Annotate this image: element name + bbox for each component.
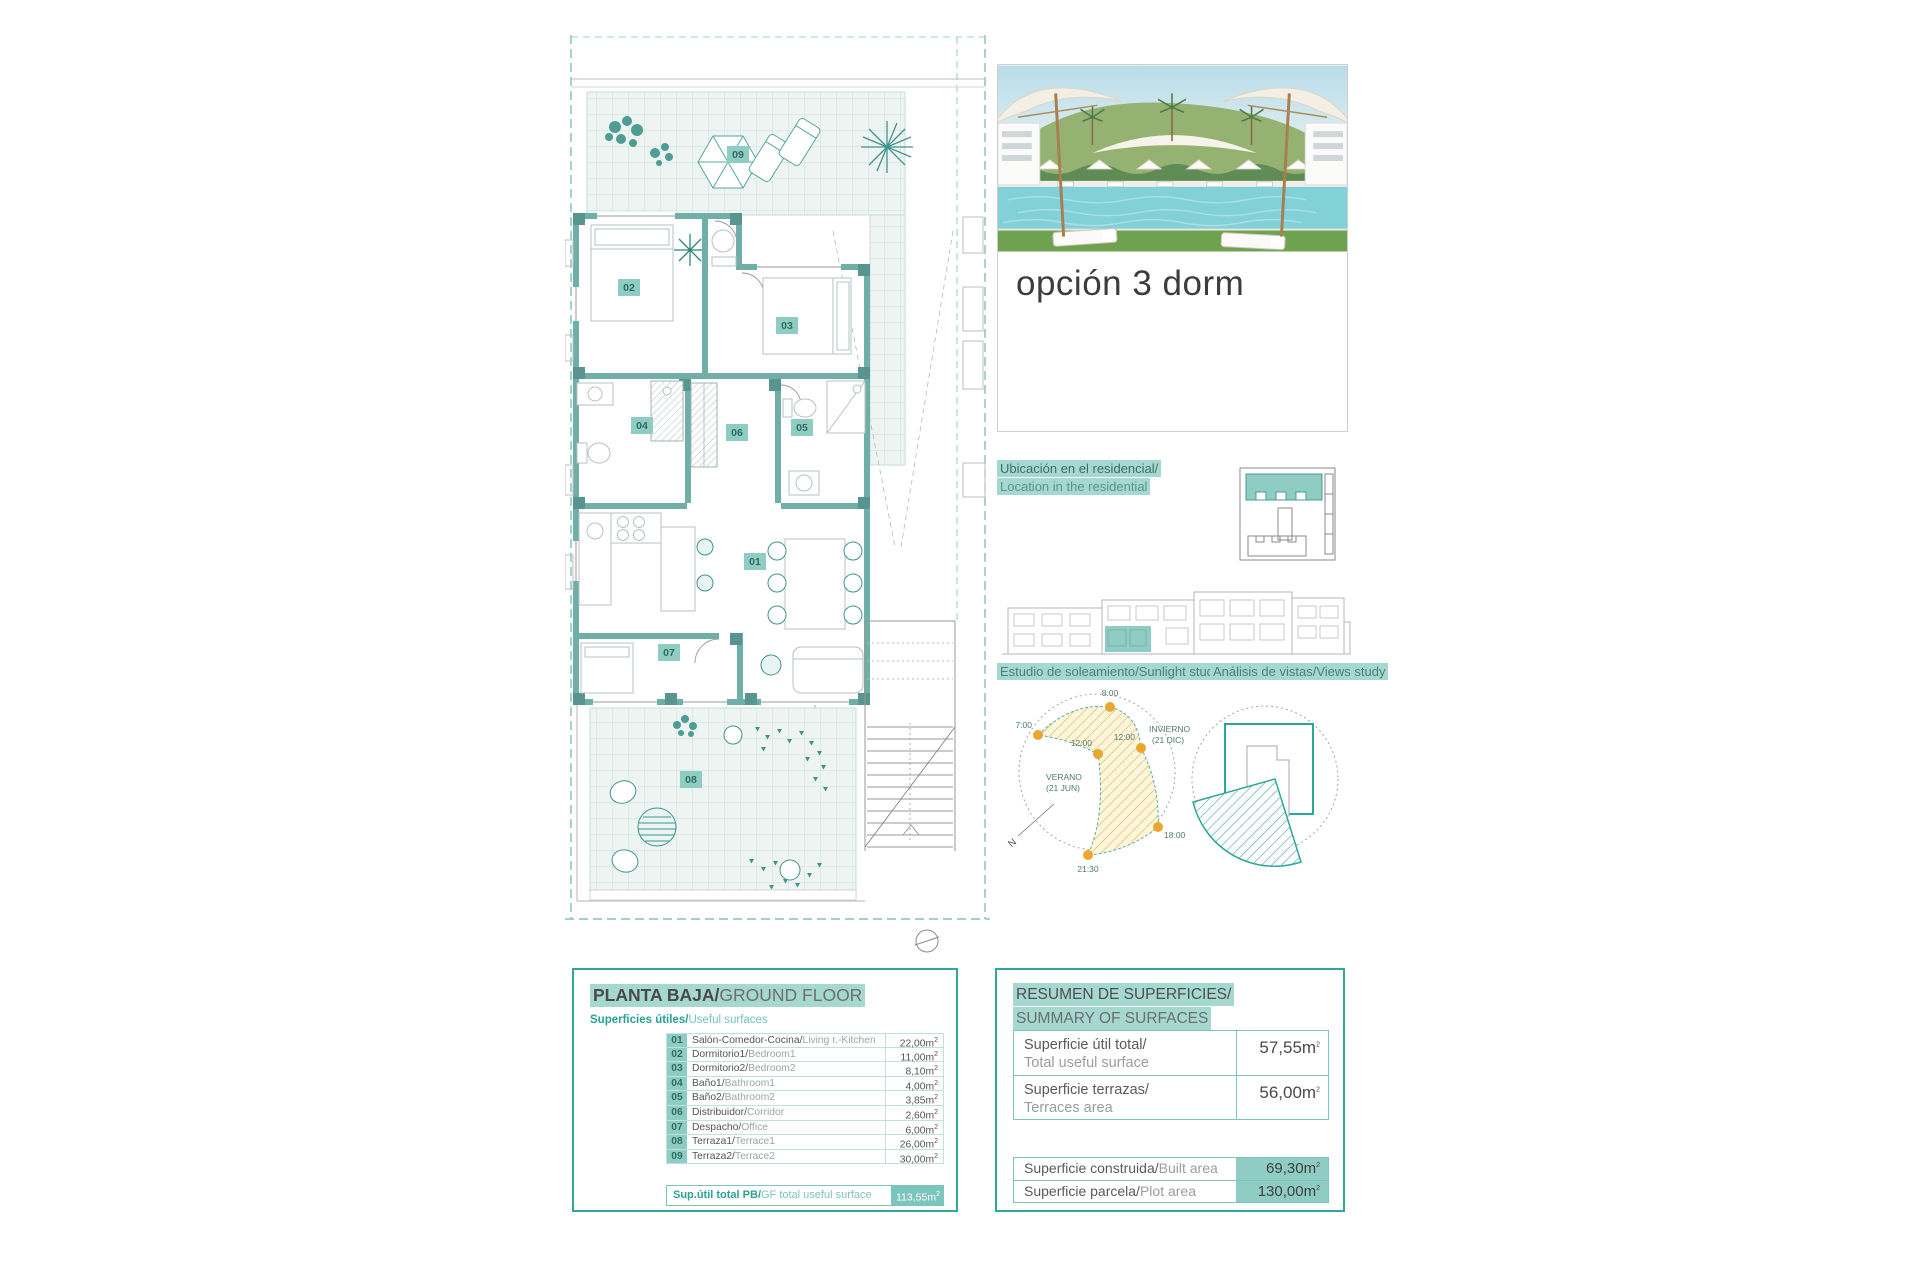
table-row: 09 Terraza2/Terrace2 30,00m2 (666, 1150, 944, 1165)
sun-time-18: 18:00 (1164, 830, 1186, 840)
room-code: 07 (667, 1121, 687, 1135)
ground-floor-title: PLANTA BAJA/GROUND FLOOR (590, 984, 865, 1007)
views-study-label: Análisis de vistas/Views study (1210, 664, 1388, 679)
ground-floor-surfaces-panel: PLANTA BAJA/GROUND FLOOR Superficies úti… (572, 968, 958, 1212)
table-row: 08 Terraza1/Terrace1 26,00m2 (666, 1135, 944, 1150)
location-label: Ubicación en el residencial/ Location in… (997, 460, 1161, 496)
room-name: Baño1/Bathroom1 (687, 1077, 885, 1091)
winter-date-label: (21 DIC) (1152, 735, 1184, 745)
sunlight-study-label: Estudio de soleamiento/Sunlight study (997, 664, 1223, 679)
svg-text:04: 04 (636, 420, 648, 432)
useful-surfaces-subtitle: Superficies útiles/Useful surfaces (590, 1014, 956, 1026)
sun-time-2130: 21:30 (1077, 864, 1099, 874)
table-row: Superficie construida/Built area 69,30m2 (1014, 1158, 1328, 1180)
table-row: 06 Distribuidor/Corridor 2,60m2 (666, 1106, 944, 1121)
summer-label: VERANO (1046, 772, 1082, 782)
room-area: 2,60m2 (885, 1106, 943, 1120)
room-chip-04: 04 (631, 417, 653, 434)
svg-text:07: 07 (663, 647, 675, 659)
svg-text:05: 05 (796, 422, 808, 434)
room-chip-07: 07 (658, 644, 680, 661)
summary-table-top: Superficie útil total/Total useful surfa… (1013, 1030, 1329, 1120)
sun-time-12-winter: 12:00 (1114, 732, 1136, 742)
room-area: 22,00m2 (885, 1034, 943, 1047)
site-plan-diagram (1238, 462, 1350, 577)
room-chip-05: 05 (791, 419, 813, 436)
elevation-diagram (1002, 578, 1352, 663)
room-code: 01 (667, 1034, 687, 1047)
room-area: 6,00m2 (885, 1121, 943, 1135)
total-label: Sup.útil total PB/GF total useful surfac… (666, 1185, 892, 1206)
summary-value: 57,55m2 (1236, 1031, 1328, 1075)
table-row: 07 Despacho/Office 6,00m2 (666, 1121, 944, 1136)
total-useful-surface-row: Sup.útil total PB/GF total useful surfac… (666, 1185, 944, 1206)
room-name: Distribuidor/Corridor (687, 1106, 885, 1120)
floor-plan-drawing: 01 02 03 04 05 06 07 08 09 (565, 35, 990, 955)
room-chip-09: 09 (727, 146, 749, 163)
room-name: Despacho/Office (687, 1121, 885, 1135)
table-row: 04 Baño1/Bathroom1 4,00m2 (666, 1077, 944, 1092)
total-area-value: 113,55m2 (892, 1185, 944, 1206)
room-surfaces-table: 01 Salón-Comedor-Cocina/Living r.-Kitche… (666, 1033, 944, 1164)
pool-render-image (998, 65, 1347, 252)
room-code: 08 (667, 1135, 687, 1149)
room-code: 09 (667, 1150, 687, 1164)
summary-title: RESUMEN DE SUPERFICIES/ SUMMARY OF SURFA… (1013, 983, 1343, 1031)
room-code: 06 (667, 1106, 687, 1120)
table-row: 01 Salón-Comedor-Cocina/Living r.-Kitche… (666, 1033, 944, 1048)
svg-text:03: 03 (781, 320, 793, 332)
summary-table-bottom: Superficie construida/Built area 69,30m2… (1013, 1157, 1329, 1203)
room-chip-01: 01 (744, 553, 766, 570)
room-name: Dormitorio2/Bedroom2 (687, 1062, 885, 1076)
room-chip-08: 08 (680, 771, 702, 788)
table-row: 03 Dormitorio2/Bedroom2 8,10m2 (666, 1062, 944, 1077)
room-area: 26,00m2 (885, 1135, 943, 1149)
room-name: Baño2/Bathroom2 (687, 1091, 885, 1105)
table-row: 02 Dormitorio1/Bedroom1 11,00m2 (666, 1048, 944, 1063)
sunlight-study-diagram: 8:00 7:00 12:00 12:00 18:00 21:30 INVIER… (1002, 684, 1202, 904)
summary-value: 130,00m2 (1236, 1181, 1328, 1202)
room-chip-03: 03 (776, 317, 798, 334)
summary-of-surfaces-panel: RESUMEN DE SUPERFICIES/ SUMMARY OF SURFA… (995, 968, 1345, 1212)
summary-value: 56,00m2 (1236, 1076, 1328, 1119)
room-name: Terraza2/Terrace2 (687, 1150, 885, 1164)
room-area: 3,85m2 (885, 1091, 943, 1105)
room-code: 02 (667, 1048, 687, 1062)
table-row: Superficie parcela/Plot area 130,00m2 (1014, 1180, 1328, 1202)
brochure-page: { "photo_card": { "title": "opción 3 dor… (0, 0, 1920, 1280)
room-name: Terraza1/Terrace1 (687, 1135, 885, 1149)
room-name: Dormitorio1/Bedroom1 (687, 1048, 885, 1062)
stairs (865, 621, 955, 851)
room-area: 11,00m2 (885, 1048, 943, 1062)
north-label: N (1006, 837, 1019, 850)
views-study-diagram (1185, 684, 1355, 904)
room-code: 05 (667, 1091, 687, 1105)
room-code: 04 (667, 1077, 687, 1091)
table-row: Superficie útil total/Total useful surfa… (1014, 1031, 1328, 1075)
option-card: opción 3 dorm (997, 64, 1348, 432)
sun-time-7: 7:00 (1015, 720, 1032, 730)
section-marker-icon (915, 930, 939, 952)
room-chip-02: 02 (618, 279, 640, 296)
summary-value: 69,30m2 (1236, 1158, 1328, 1180)
room-chip-06: 06 (726, 424, 748, 441)
room-name: Salón-Comedor-Cocina/Living r.-Kitchen (687, 1034, 885, 1047)
room-area: 30,00m2 (885, 1150, 943, 1164)
sun-time-12-summer: 12:00 (1071, 738, 1093, 748)
svg-text:08: 08 (685, 774, 697, 786)
room-area: 8,10m2 (885, 1062, 943, 1076)
svg-text:01: 01 (749, 556, 761, 568)
svg-text:02: 02 (623, 282, 635, 294)
room-area: 4,00m2 (885, 1077, 943, 1091)
svg-text:09: 09 (732, 149, 744, 161)
svg-text:06: 06 (731, 427, 743, 439)
summer-date-label: (21 JUN) (1046, 783, 1080, 793)
location-label-en: Location in the residential (997, 478, 1150, 495)
room-code: 03 (667, 1062, 687, 1076)
location-label-es: Ubicación en el residencial/ (997, 460, 1161, 477)
option-title: opción 3 dorm (1016, 264, 1347, 304)
floor-plan: 01 02 03 04 05 06 07 08 09 (565, 35, 990, 955)
table-row: Superficie terrazas/Terraces area 56,00m… (1014, 1075, 1328, 1119)
table-row: 05 Baño2/Bathroom2 3,85m2 (666, 1091, 944, 1106)
sun-time-8: 8:00 (1102, 688, 1119, 698)
